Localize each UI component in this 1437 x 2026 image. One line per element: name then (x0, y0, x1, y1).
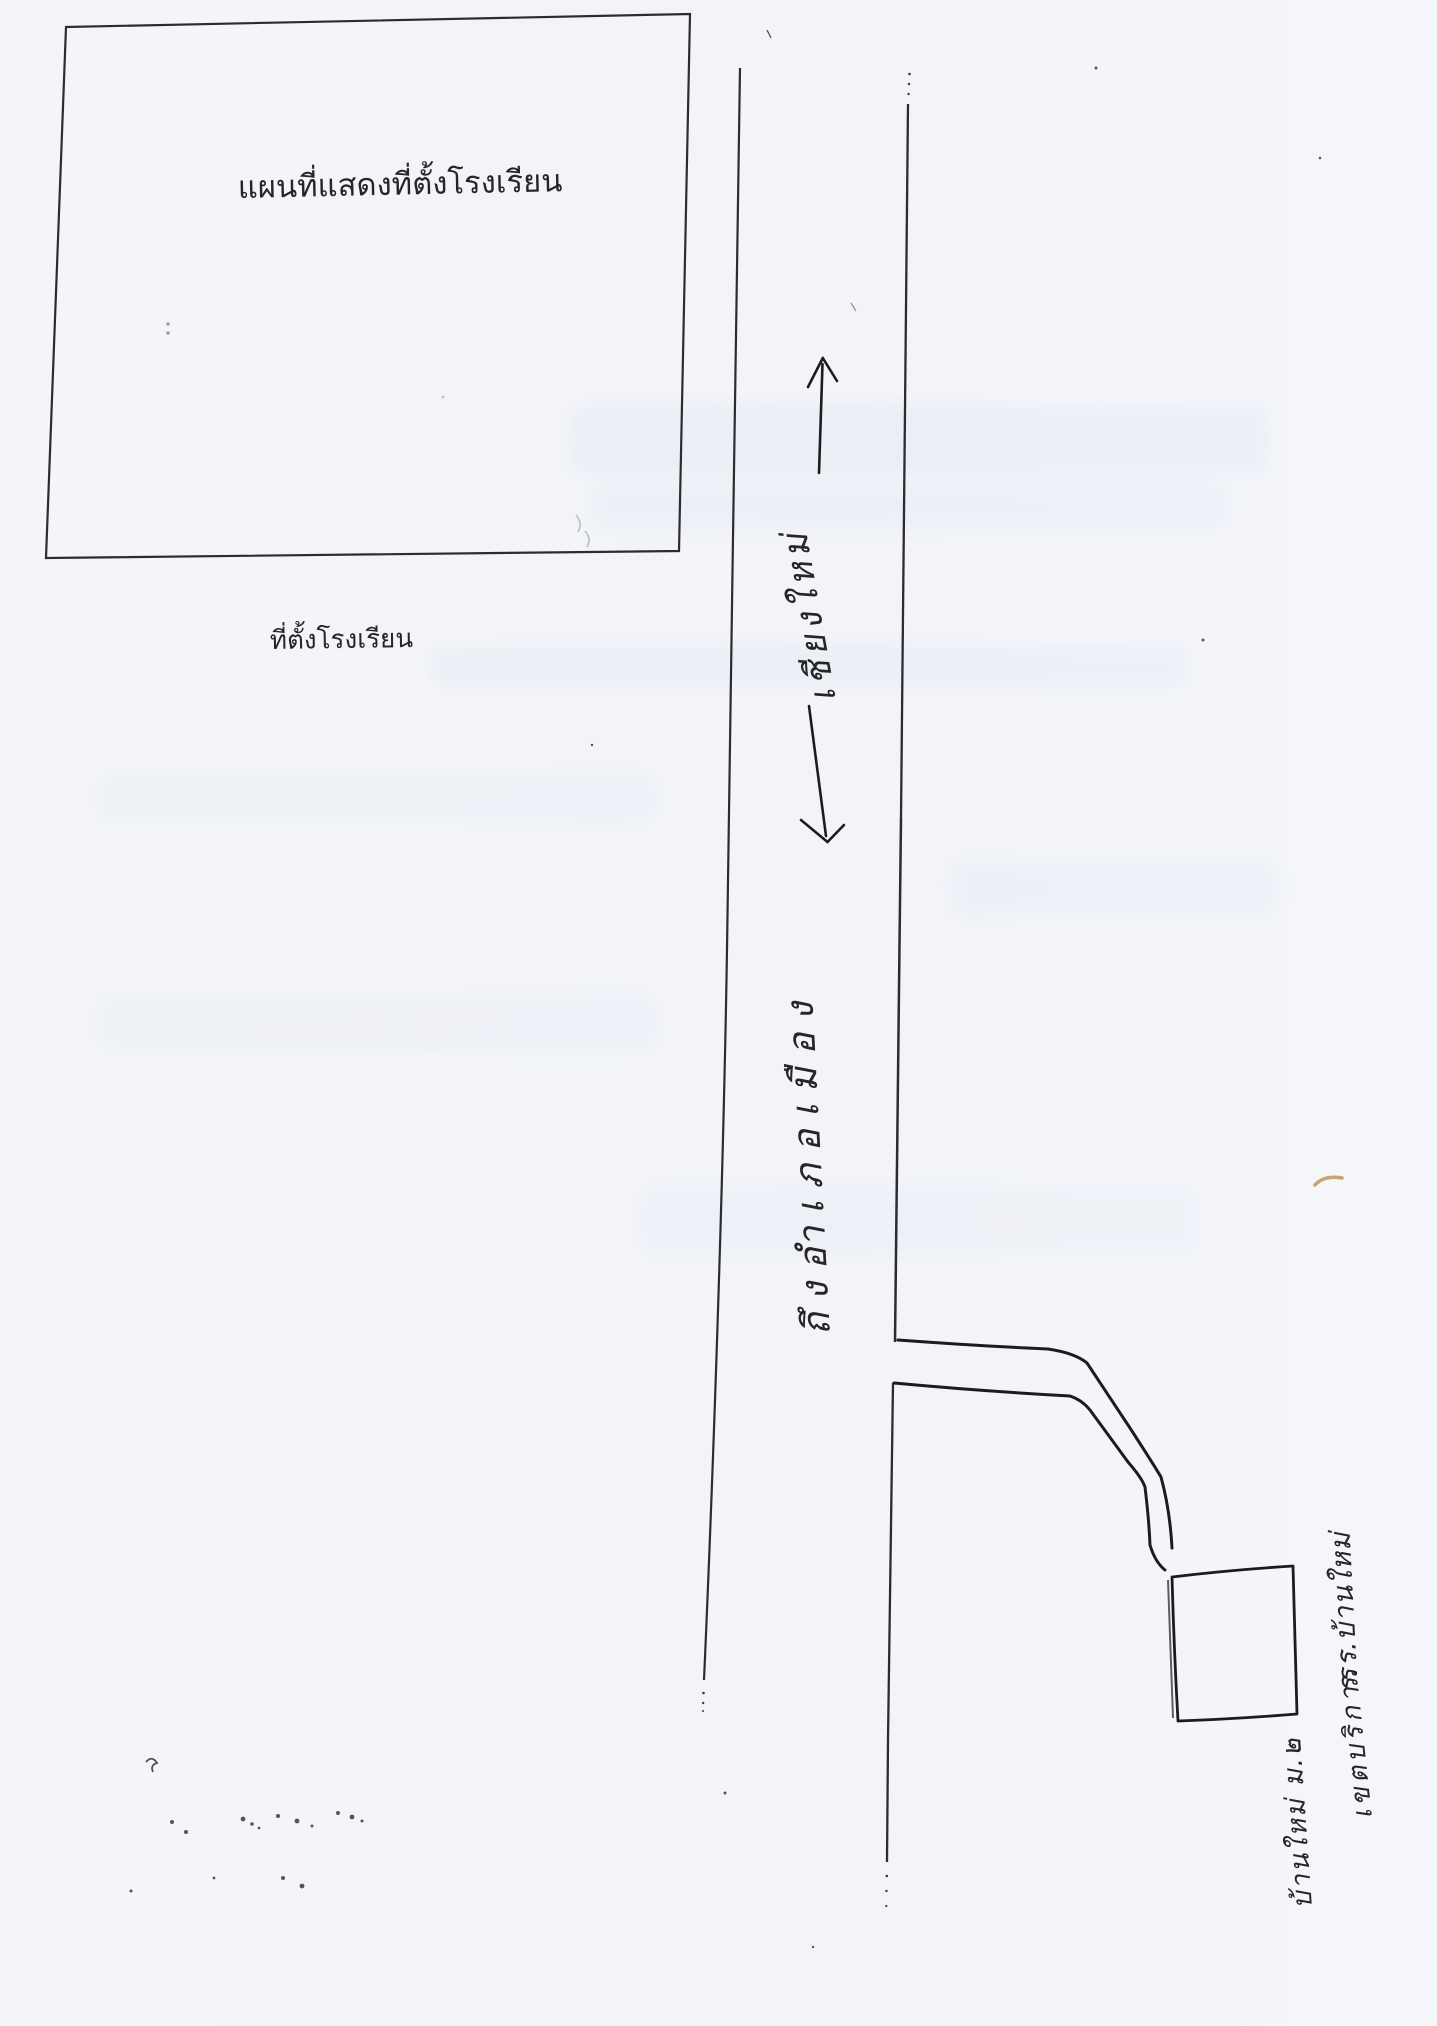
service-note-line2: บ้านใหม่ ม.๒ (1275, 1736, 1319, 1910)
map-frame-box (46, 14, 690, 558)
branch-road (894, 1340, 1172, 1570)
school-location-label: ที่ตั้งโรงเรียน (270, 619, 414, 656)
map-frame-title: แผนที่แสดงที่ตั้งโรงเรียน (237, 158, 562, 206)
orange-pen-mark (1315, 1177, 1342, 1185)
arrow-down-icon (801, 706, 844, 842)
faint-pencil-marks (442, 396, 589, 547)
arrow-up-icon (808, 358, 837, 473)
scanned-page: แผนที่แสดงที่ตั้งโรงเรียน ที่ตั้งโรงเรีย… (0, 0, 1437, 2026)
road-line-left (702, 68, 740, 1712)
school-building-box (1168, 1566, 1297, 1721)
road-label-north: เชียงใหม่ (773, 526, 845, 706)
faint-mark-colon (166, 322, 169, 334)
road-line-right (885, 73, 911, 1907)
road-label-south: ถึงอำเภอเมือง (777, 989, 839, 1337)
service-note-line1: เขตบริการ (1332, 1663, 1379, 1820)
school-location-map: แผนที่แสดงที่ตั้งโรงเรียน ที่ตั้งโรงเรีย… (0, 0, 1437, 2026)
